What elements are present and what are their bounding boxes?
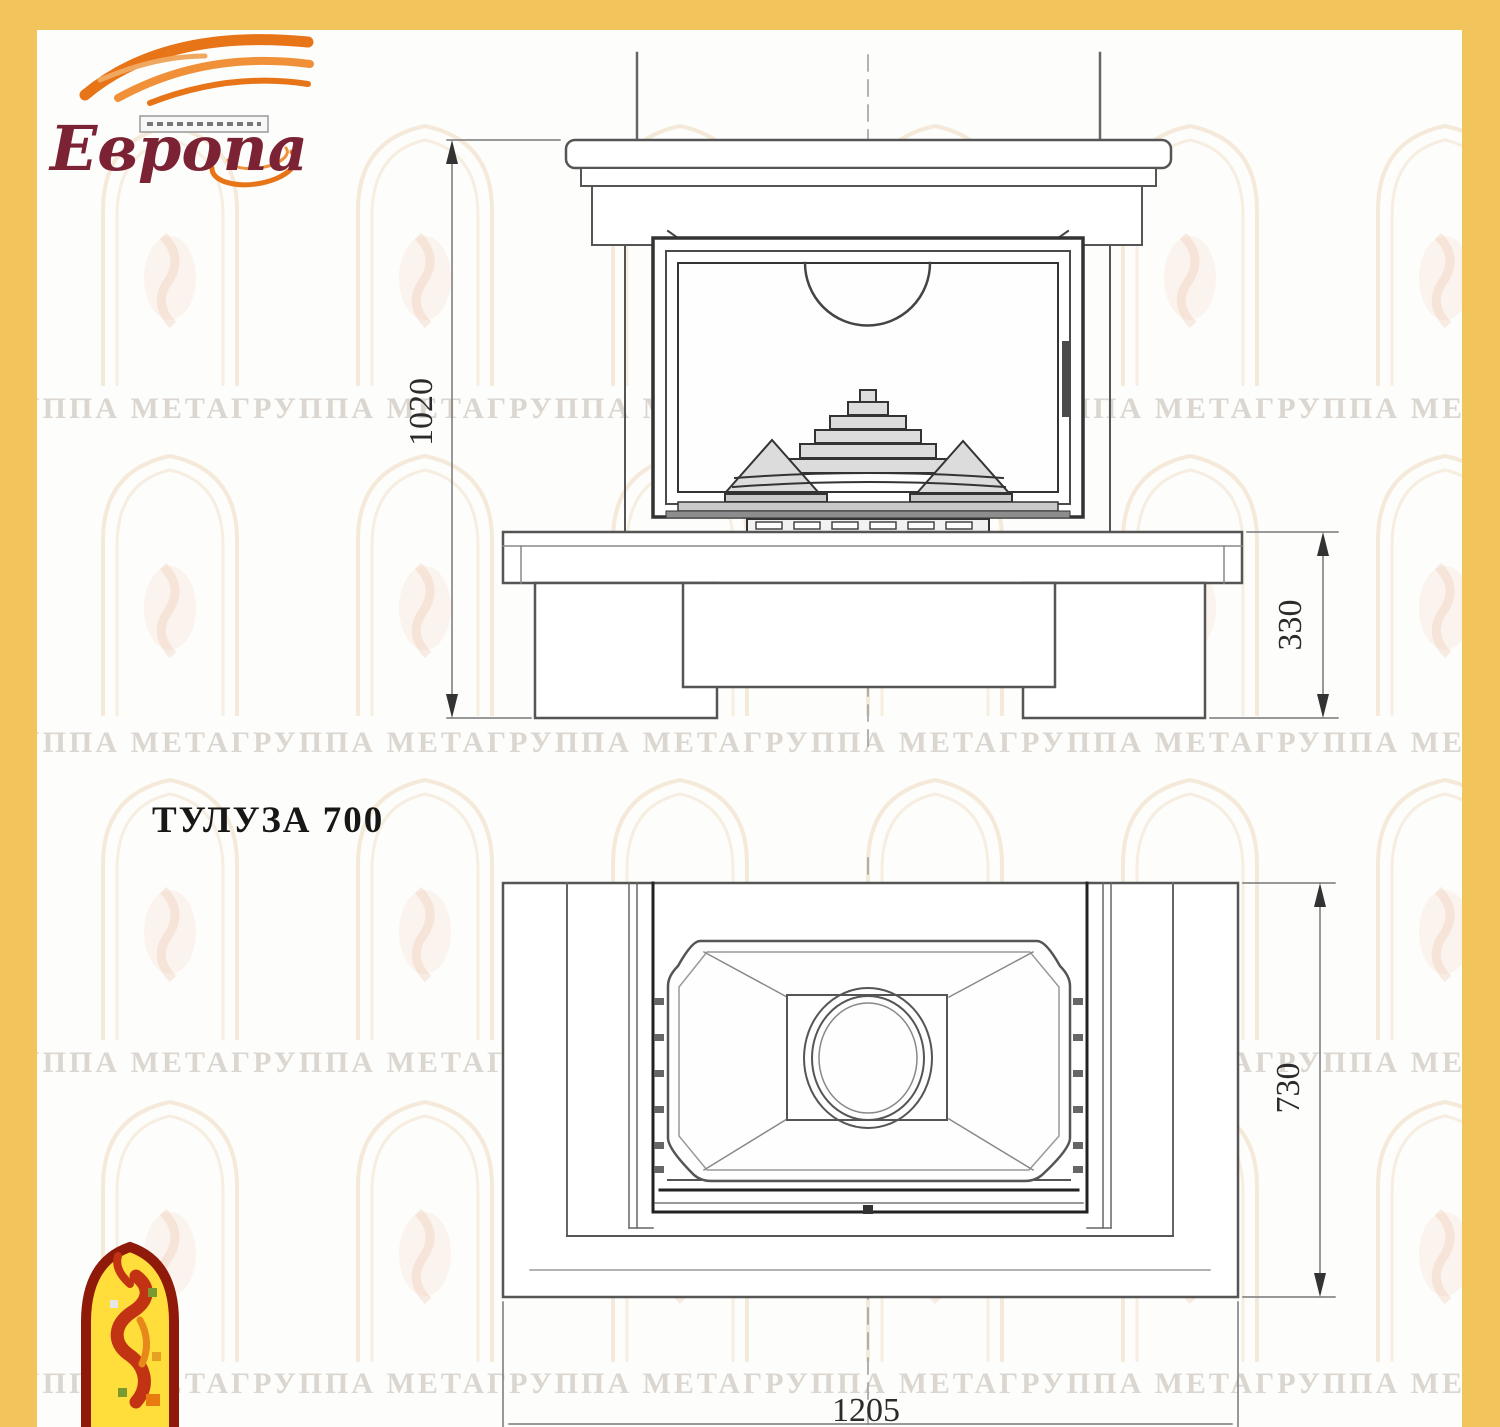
dimension-depth-730: 730 — [1243, 883, 1335, 1297]
frame-band-left — [0, 0, 37, 1427]
vent-strip — [747, 519, 989, 532]
door-sill — [678, 502, 1058, 511]
front-elevation-view: 1020 330 — [403, 53, 1338, 748]
dim-label-730: 730 — [1270, 1063, 1307, 1114]
hearth-slab — [503, 532, 1242, 583]
mantel-tier — [581, 168, 1156, 186]
model-title: ТУЛУЗА 700 — [152, 800, 384, 841]
europa-logo: Европа — [48, 40, 310, 185]
frame-band-right — [1462, 0, 1500, 1427]
mantel-shelf — [566, 140, 1171, 168]
firebox-front — [653, 231, 1083, 518]
base-center-block — [683, 583, 1055, 687]
plan-firebox-body — [668, 941, 1070, 1181]
dimension-width-1205: 1205 — [503, 1302, 1238, 1427]
dim-label-330: 330 — [1272, 600, 1309, 651]
door-handle — [1062, 341, 1070, 417]
plan-latch-mark — [863, 1205, 873, 1214]
frame-band-top — [0, 0, 1500, 30]
firebox-base-band — [666, 511, 1070, 518]
fireplace-technical-drawing: 1020 330 ТУЛУЗА 700 — [0, 0, 1500, 1427]
top-plan-view: 730 1205 — [503, 858, 1335, 1427]
dim-label-1205: 1205 — [832, 1392, 900, 1427]
drawing-page: ГРУППА МЕТАГРУППА МЕТАГРУППА МЕТАГРУППА … — [0, 0, 1500, 1427]
dim-label-1020: 1020 — [403, 378, 440, 446]
logo-tagline-banner — [140, 116, 268, 132]
meta-arch-logo — [86, 1247, 174, 1427]
